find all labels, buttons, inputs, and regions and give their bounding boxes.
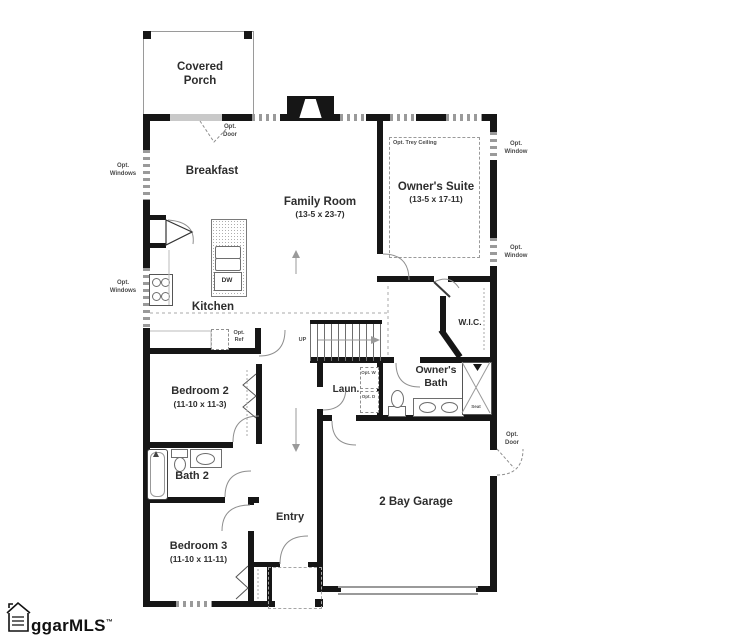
- room-label-covered-porch: Covered Porch: [168, 60, 232, 89]
- room-name: Bedroom 3: [170, 540, 227, 552]
- room-label-bedroom-2: Bedroom 2 (11-10 x 11-3): [160, 385, 240, 409]
- dishwasher-label: DW: [214, 277, 240, 285]
- room-dims: (11-10 x 11-3): [160, 399, 240, 410]
- room-label-wic: W.I.C.: [448, 317, 492, 328]
- annotation-opt-windows-top: Opt. Windows: [106, 163, 140, 179]
- wall-segment: [248, 497, 254, 505]
- burner: [161, 278, 170, 287]
- window: [490, 132, 497, 160]
- door-leaf: [434, 282, 450, 297]
- window: [252, 114, 280, 121]
- window: [490, 238, 497, 266]
- annotation-opt-window-bottom: Opt. Window: [500, 245, 532, 261]
- plan-linework: [0, 0, 751, 637]
- pantry-door-leaf: [166, 220, 192, 245]
- vanity-sink: [441, 402, 458, 413]
- floor-plan: DW Opt. Ref Opt. W Opt. D Seat Opt. Trey…: [0, 0, 751, 637]
- wall-segment: [256, 364, 262, 444]
- toilet-bowl: [391, 390, 404, 408]
- room-label-breakfast: Breakfast: [178, 164, 246, 178]
- room-name: Owner's Suite: [398, 181, 474, 193]
- wall-segment: [248, 531, 254, 607]
- pantry-wall: [150, 215, 166, 220]
- annotation-stairs-up: UP: [296, 337, 309, 344]
- room-dims: (11-10 x 11-11): [156, 554, 241, 565]
- opt-trey-ceiling-label: Opt. Trey Ceiling: [393, 140, 463, 147]
- room-label-owners-suite: Owner's Suite (13-5 x 17-11): [390, 180, 482, 205]
- watermark-tm: ™: [106, 619, 113, 626]
- opt-ref-label: Opt. Ref: [229, 330, 249, 344]
- wall-segment: [490, 114, 497, 592]
- pantry-wall: [150, 243, 166, 248]
- flow-arrow: [292, 250, 300, 452]
- wall-segment: [377, 114, 383, 254]
- vanity-sink: [419, 402, 436, 413]
- house-logo-icon: [3, 600, 33, 634]
- porch-post: [244, 31, 252, 39]
- burner: [152, 278, 161, 287]
- porch-post: [143, 31, 151, 39]
- garage-opt-door-opening: [490, 450, 497, 476]
- room-label-family-room: Family Room (13-5 x 23-7): [275, 195, 365, 220]
- annotation-opt-windows-bottom: Opt. Windows: [106, 280, 140, 296]
- room-label-kitchen: Kitchen: [184, 300, 242, 314]
- room-name: Bedroom 2: [171, 385, 228, 397]
- wall-segment: [317, 357, 323, 387]
- annotation-garage-opt-door: Opt. Door: [499, 432, 525, 448]
- window: [176, 601, 212, 607]
- bathtub-inner: [150, 452, 165, 497]
- door-opening: [170, 114, 222, 121]
- room-dims: (13-5 x 17-11): [390, 194, 482, 205]
- shower-seat-label: Seat: [462, 404, 490, 409]
- opt-washer-label: Opt. W: [361, 370, 376, 375]
- opt-refrigerator-box: [211, 329, 229, 350]
- annotation-porch-opt-door: Opt. Door: [218, 124, 242, 140]
- room-label-laundry: Laun.: [324, 384, 368, 397]
- burner: [161, 292, 170, 301]
- room-name: Family Room: [284, 196, 356, 208]
- room-label-entry: Entry: [265, 511, 315, 525]
- staircase: [310, 320, 382, 361]
- wall-segment: [143, 442, 233, 448]
- window: [143, 150, 150, 200]
- room-dims: (13-5 x 23-7): [275, 209, 365, 220]
- wall-segment: [440, 296, 446, 332]
- front-stoop: [268, 567, 322, 609]
- wall-segment: [448, 276, 497, 282]
- burner: [152, 292, 161, 301]
- angled-wall: [441, 330, 460, 357]
- garage-door: [338, 586, 478, 595]
- window: [390, 114, 416, 121]
- wall-segment: [255, 328, 261, 354]
- room-label-garage: 2 Bay Garage: [368, 495, 464, 509]
- room-label-bath-2: Bath 2: [166, 470, 218, 484]
- vanity-sink: [196, 453, 215, 465]
- annotation-opt-window-top: Opt. Window: [500, 141, 532, 157]
- wall-segment: [143, 348, 261, 354]
- watermark-text: ggarMLS: [31, 617, 106, 634]
- kitchen-sink: [215, 258, 241, 271]
- wall-segment: [377, 276, 434, 282]
- wall-segment: [476, 586, 497, 592]
- window: [446, 114, 482, 121]
- watermark: ggarMLS ™: [3, 598, 113, 634]
- window: [340, 114, 366, 121]
- room-label-bedroom-3: Bedroom 3 (11-10 x 11-11): [156, 540, 241, 564]
- room-label-owners-bath: Owner's Bath: [404, 364, 468, 390]
